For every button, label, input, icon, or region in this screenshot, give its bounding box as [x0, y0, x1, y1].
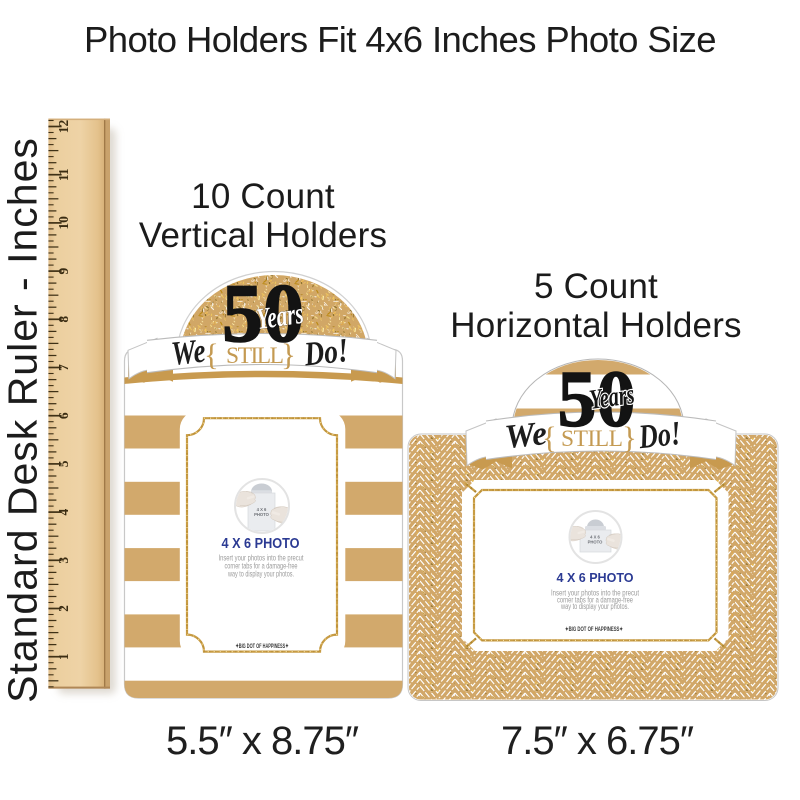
svg-text:}: } — [622, 420, 637, 455]
svg-text:{: { — [204, 337, 219, 372]
svg-text:10: 10 — [56, 216, 71, 230]
svg-text:PHOTO: PHOTO — [588, 540, 604, 545]
svg-text:Years: Years — [254, 297, 305, 336]
svg-text:PHOTO: PHOTO — [254, 512, 270, 517]
svg-text:STILL: STILL — [561, 426, 623, 452]
svg-text:12: 12 — [56, 120, 71, 134]
svg-text:7: 7 — [56, 364, 71, 371]
svg-text:11: 11 — [56, 168, 71, 181]
svg-text:Years: Years — [587, 379, 636, 416]
svg-text:9: 9 — [56, 267, 71, 274]
svg-text:4 X 6 PHOTO: 4 X 6 PHOTO — [557, 570, 634, 585]
svg-text:}: } — [281, 337, 296, 372]
svg-text:8: 8 — [56, 316, 71, 323]
svg-text:{: { — [542, 420, 557, 455]
svg-text:STILL: STILL — [226, 343, 284, 369]
svg-text:5: 5 — [56, 460, 71, 467]
svg-text:Do!: Do! — [302, 332, 350, 373]
svg-text:2: 2 — [56, 605, 71, 612]
svg-text:1: 1 — [56, 653, 71, 660]
svg-text:✦BIG DOT OF HAPPINESS✦: ✦BIG DOT OF HAPPINESS✦ — [236, 643, 289, 650]
svg-text:✦BIG DOT OF HAPPINESS✦: ✦BIG DOT OF HAPPINESS✦ — [565, 626, 623, 633]
svg-text:way to display your photos.: way to display your photos. — [560, 602, 629, 611]
svg-text:4: 4 — [56, 508, 71, 515]
svg-text:4 X 6 PHOTO: 4 X 6 PHOTO — [222, 536, 300, 552]
svg-text:We: We — [170, 333, 208, 373]
svg-text:6: 6 — [56, 412, 71, 419]
svg-text:Do!: Do! — [636, 415, 682, 456]
svg-text:3: 3 — [56, 557, 71, 564]
svg-text:way to display your photos.: way to display your photos. — [227, 569, 294, 578]
